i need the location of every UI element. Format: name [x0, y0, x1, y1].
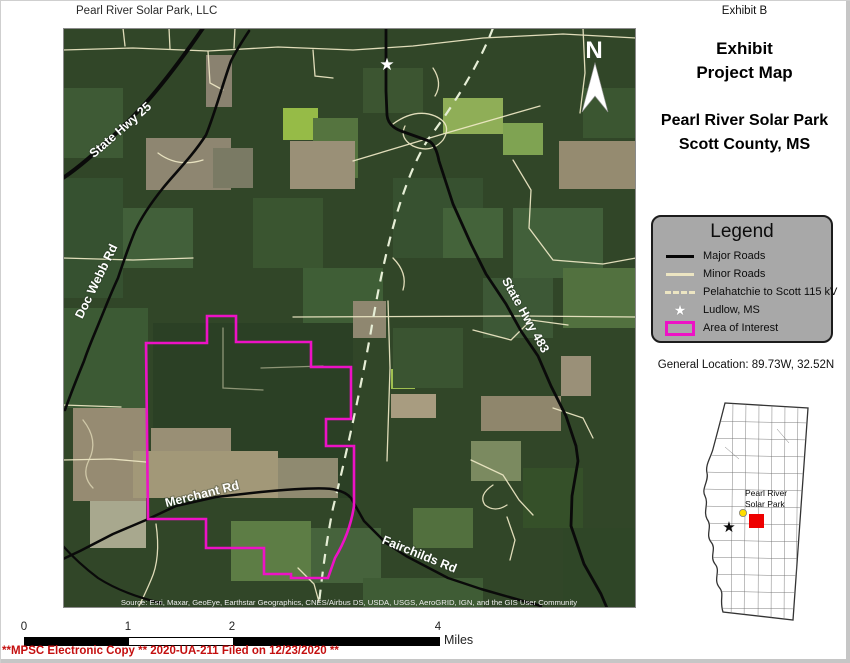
legend-item-major-roads: Major Roads — [653, 247, 831, 265]
scale-unit-label: Miles — [444, 633, 473, 647]
major-road-swatch — [663, 255, 697, 258]
star-icon: ★ — [663, 303, 697, 317]
panel-heading: Exhibit Project Map — [641, 37, 848, 85]
heading-line1: Exhibit — [641, 37, 848, 61]
page-bottom-border — [1, 659, 850, 663]
exhibit-label: Exhibit B — [641, 5, 848, 17]
project-county-highlight — [749, 514, 764, 528]
scale-tick-0: 0 — [21, 621, 27, 633]
mississippi-inset-map: ★ Pearl River Solar Park — [681, 399, 850, 632]
aoi-swatch — [663, 321, 697, 336]
svg-text:Pearl River: Pearl River — [745, 488, 787, 498]
document-title: Pearl River Solar Park, LLC — [76, 5, 217, 17]
state-outline — [704, 403, 808, 620]
exhibit-page: Pearl River Solar Park, LLC Exhibit B — [0, 0, 850, 663]
legend-item-minor-roads: Minor Roads — [653, 265, 831, 283]
page-right-border — [846, 1, 850, 663]
scale-tick-1: 1 — [125, 621, 131, 633]
scale-tick-4: 4 — [435, 621, 441, 633]
transmission-line-swatch — [663, 291, 697, 294]
road-bottom-left — [63, 546, 161, 603]
legend-item-aoi: Area of Interest — [653, 319, 831, 337]
panel-subheading: Pearl River Solar Park Scott County, MS — [641, 109, 848, 157]
subheading-line2: Scott County, MS — [641, 133, 848, 157]
legend-title: Legend — [653, 221, 831, 243]
scale-segment-black-1 — [25, 638, 129, 645]
subheading-line1: Pearl River Solar Park — [641, 109, 848, 133]
scale-segment-black-2 — [233, 638, 439, 645]
legend-item-transmission: Pelahatchie to Scott 115 kV — [653, 283, 831, 301]
inset-star-icon: ★ — [722, 519, 735, 536]
map-attribution: Source: Esri, Maxar, GeoEye, Earthstar G… — [121, 598, 577, 607]
legend-item-ludlow: ★ Ludlow, MS — [653, 301, 831, 319]
satellite-map-canvas: ★ State Hwy 25 Doc Webb Rd State Hwy 483… — [63, 28, 636, 608]
heading-line2: Project Map — [641, 61, 848, 85]
scale-tick-2: 2 — [229, 621, 235, 633]
minor-road-swatch — [663, 273, 697, 276]
mpsc-filing-stamp: **MPSC Electronic Copy ** 2020-UA-211 Fi… — [2, 645, 339, 657]
inset-label: Pearl River Solar Park — [745, 488, 787, 509]
svg-text:Solar Park: Solar Park — [745, 499, 785, 509]
general-location: General Location: 89.73W, 32.52N — [641, 359, 850, 371]
scale-segment-white — [129, 638, 233, 645]
project-map: ★ State Hwy 25 Doc Webb Rd State Hwy 483… — [63, 28, 636, 608]
ludlow-star-icon: ★ — [379, 55, 394, 74]
north-label: N — [585, 37, 602, 64]
project-location-dot — [739, 509, 746, 516]
legend: Legend Major Roads Minor Roads Pelahatch… — [651, 215, 833, 343]
